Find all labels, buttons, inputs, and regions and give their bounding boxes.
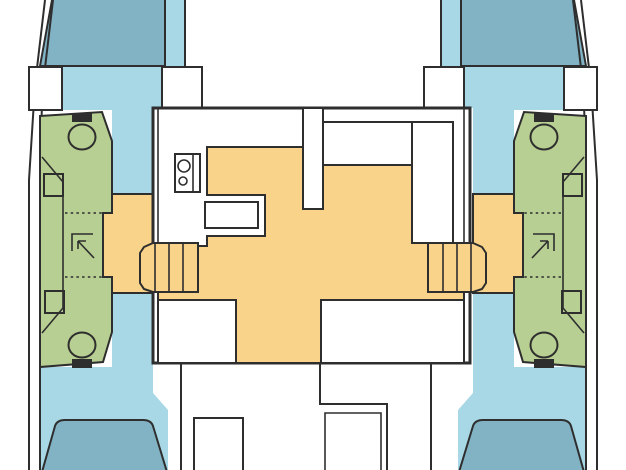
forward-berth (40, 0, 165, 66)
companionway-stairs-port (140, 243, 198, 292)
companionway-stairs-starboard (428, 243, 486, 292)
toilet-aft-tank (72, 359, 92, 368)
galley-stove (175, 154, 200, 192)
settee-horizontal (323, 122, 412, 165)
toilet-forward-tank (72, 113, 92, 122)
aft-berth (42, 420, 167, 470)
cockpit-table-outer (320, 363, 387, 470)
side-deck-gate-inner (162, 67, 202, 108)
deck-plan (0, 0, 626, 470)
cockpit-table-inner (325, 413, 381, 470)
cockpit (181, 363, 431, 470)
side-deck-gate-outer (29, 67, 62, 110)
hull-interior-band (62, 67, 162, 110)
salon-column (303, 108, 323, 209)
galley-sink (205, 202, 258, 228)
salon (153, 108, 470, 363)
cockpit-bench (194, 418, 243, 470)
aft-block-right (321, 300, 464, 363)
deck-plan-canvas (0, 0, 626, 470)
aft-block-left (158, 300, 236, 363)
settee-vertical (412, 122, 453, 243)
bathroom (40, 112, 112, 367)
